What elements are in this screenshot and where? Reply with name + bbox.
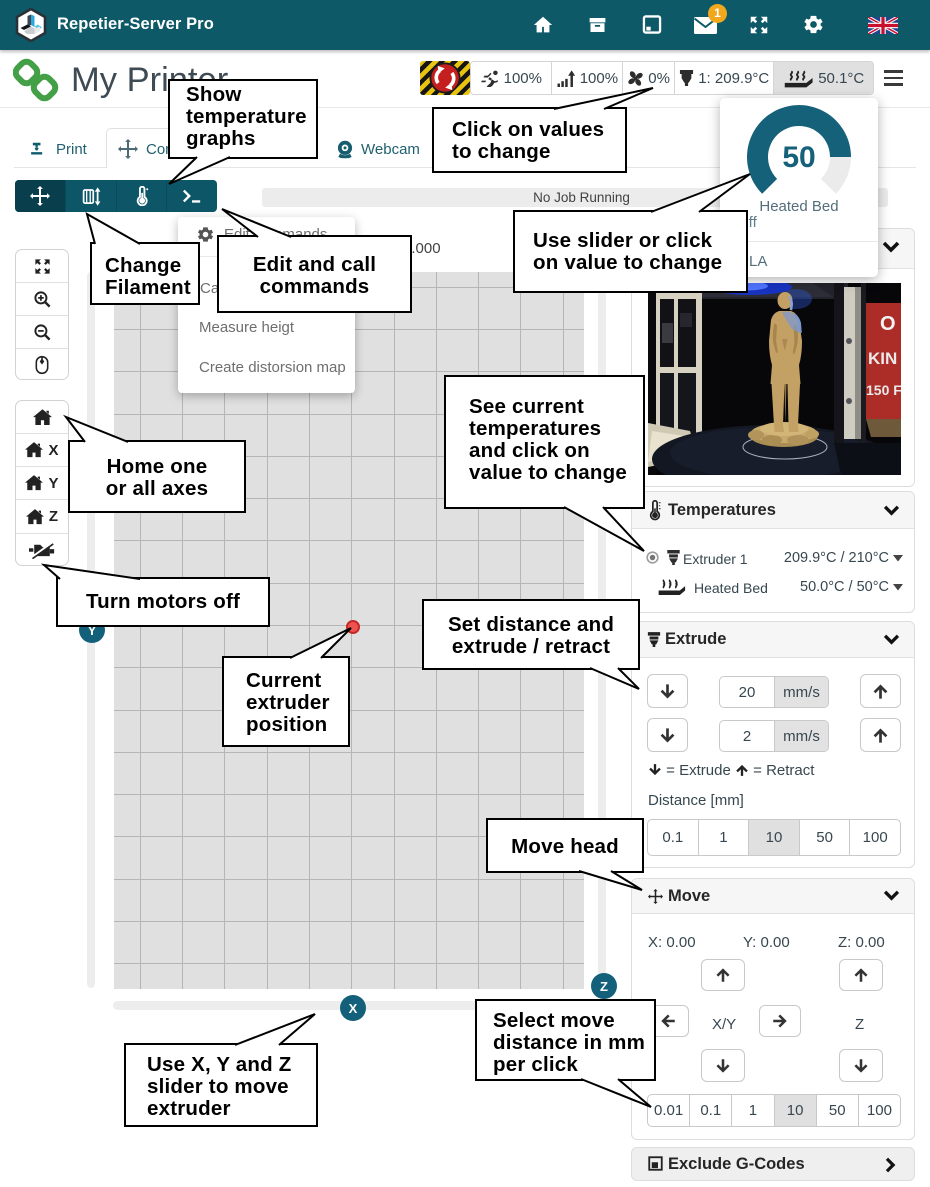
svg-text:150 F: 150 F [866,382,901,398]
svg-text:KIN: KIN [868,349,897,368]
svg-text:O: O [880,313,896,335]
svg-text:50: 50 [782,141,815,174]
